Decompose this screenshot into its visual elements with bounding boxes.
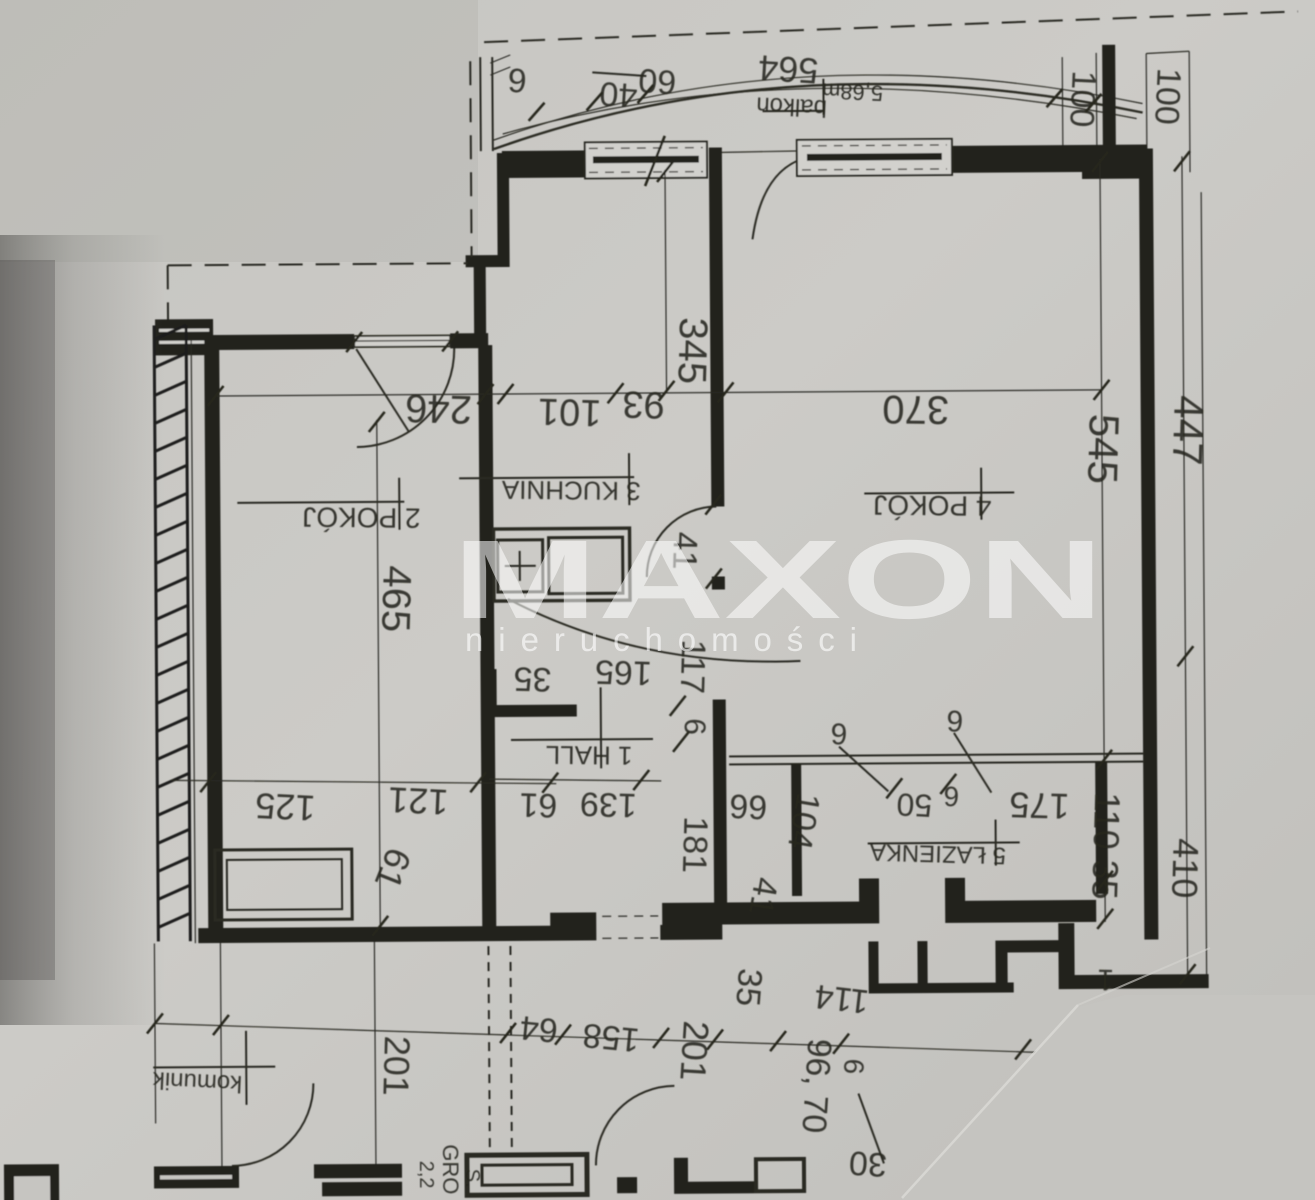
dim-6-balcony: 6 <box>507 60 528 99</box>
dim-545: 545 <box>1079 413 1128 484</box>
dim-35-lower: 35 <box>728 967 769 1008</box>
partial-gro: GRO <box>438 1144 463 1194</box>
dim-564: 564 <box>757 47 820 92</box>
label-balkon-area: 5,68m <box>821 78 883 106</box>
dim-181: 181 <box>675 816 715 874</box>
dim-6-hall: 6 <box>678 718 711 736</box>
dim-100-a: 100 <box>1062 70 1103 128</box>
dim-30: 30 <box>848 1143 888 1183</box>
dim-93: 93 <box>622 382 665 425</box>
dim-165: 165 <box>595 652 653 692</box>
floor-plan-svg: 6 40 60 564 balkon 5,68m 100 100 246 101… <box>0 0 1315 1200</box>
dim-410: 410 <box>1164 838 1207 899</box>
room-label-room2: 2 POKÓJ <box>302 501 421 533</box>
dim-64: 64 <box>518 1008 559 1050</box>
dim-125: 125 <box>254 785 316 829</box>
watermark-title: MAXON <box>452 517 1104 642</box>
dim-41-bath: 41 <box>741 875 785 919</box>
dim-110-35: 110 35 <box>1084 792 1128 901</box>
dim-6-bath-b: 6 <box>946 704 964 737</box>
top-left-paper-tint <box>0 0 478 262</box>
partial-s: S. <box>461 1169 483 1188</box>
dim-447: 447 <box>1164 395 1213 466</box>
room-label-hall: 1 HALL <box>546 740 633 771</box>
dim-50: 50 <box>896 786 933 824</box>
floor-plan-scan: 6 40 60 564 balkon 5,68m 100 100 246 101… <box>0 0 1315 1200</box>
dim-40: 40 <box>598 74 638 114</box>
dim-158: 158 <box>581 1016 641 1059</box>
partial-22: 2,2 <box>415 1161 437 1189</box>
dim-345: 345 <box>669 317 715 385</box>
dim-121: 121 <box>387 779 449 823</box>
watermark-subtitle: nieruchomości <box>465 621 857 658</box>
dim-465: 465 <box>373 565 419 633</box>
dim-61-hall: 61 <box>519 785 558 824</box>
dim-175: 175 <box>1009 784 1070 827</box>
room-label-kitchen: 3 KUCHNIA <box>501 475 641 506</box>
dim-201-left: 201 <box>375 1035 418 1096</box>
dim-96-70: 96, 70 <box>794 1038 838 1135</box>
dim-246: 246 <box>405 386 473 432</box>
dim-6-bath-c: 6 <box>943 781 960 813</box>
dim-35-hall: 35 <box>513 659 552 698</box>
window-room4 <box>797 139 952 176</box>
dim-6-lower: 6 <box>838 1058 870 1075</box>
dim-201-mid: 201 <box>672 1020 717 1083</box>
dim-100-b: 100 <box>1147 67 1188 125</box>
dim-139: 139 <box>580 785 638 825</box>
dim-6-bath-a: 6 <box>830 716 848 749</box>
watermark: MAXON nieruchomości <box>452 517 1104 658</box>
label-balkon: balkon <box>756 91 828 121</box>
left-edge-shadow-core <box>0 260 55 980</box>
room-label-corridor: komunik <box>151 1066 242 1097</box>
dim-101: 101 <box>537 390 602 434</box>
dim-370: 370 <box>882 387 949 432</box>
room-label-bath: 5 ŁAZIENKA <box>869 838 1006 869</box>
dim-114: 114 <box>813 977 871 1021</box>
dim-66: 66 <box>729 786 769 826</box>
dim-60: 60 <box>637 61 677 101</box>
